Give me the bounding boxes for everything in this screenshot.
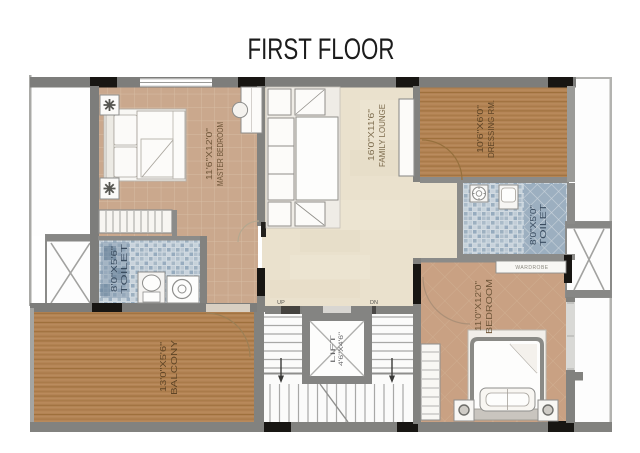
svg-text:UP: UP [277,300,285,306]
svg-text:FAMILY LOUNGE: FAMILY LOUNGE [377,104,387,167]
svg-text:WARDROBE: WARDROBE [515,265,548,271]
svg-text:11'0"X12'0": 11'0"X12'0" [474,281,483,331]
svg-text:8'0"X5'6": 8'0"X5'6" [110,246,119,292]
svg-text:TOILET: TOILET [539,204,548,246]
svg-text:FIRST FLOOR: FIRST FLOOR [248,33,395,66]
svg-text:11'6"X12'0": 11'6"X12'0" [205,128,214,180]
svg-text:BEDROOM: BEDROOM [484,279,494,334]
svg-text:LIFT: LIFT [330,335,337,363]
svg-text:MASTER BEDROOM: MASTER BEDROOM [215,122,225,186]
svg-text:DRESSING RM.: DRESSING RM. [486,100,496,158]
svg-text:BALCONY: BALCONY [169,340,179,395]
svg-text:10'6"X6'0": 10'6"X6'0" [476,105,485,153]
svg-text:TOILET: TOILET [120,244,129,294]
svg-text:16'0"X11'6": 16'0"X11'6" [367,109,376,161]
svg-text:13'0"X5'6": 13'0"X5'6" [159,342,168,392]
svg-text:DN: DN [370,300,378,306]
svg-text:4'6"X4'6": 4'6"X4'6" [338,332,345,366]
svg-text:8'0"X5'0": 8'0"X5'0" [529,205,538,245]
